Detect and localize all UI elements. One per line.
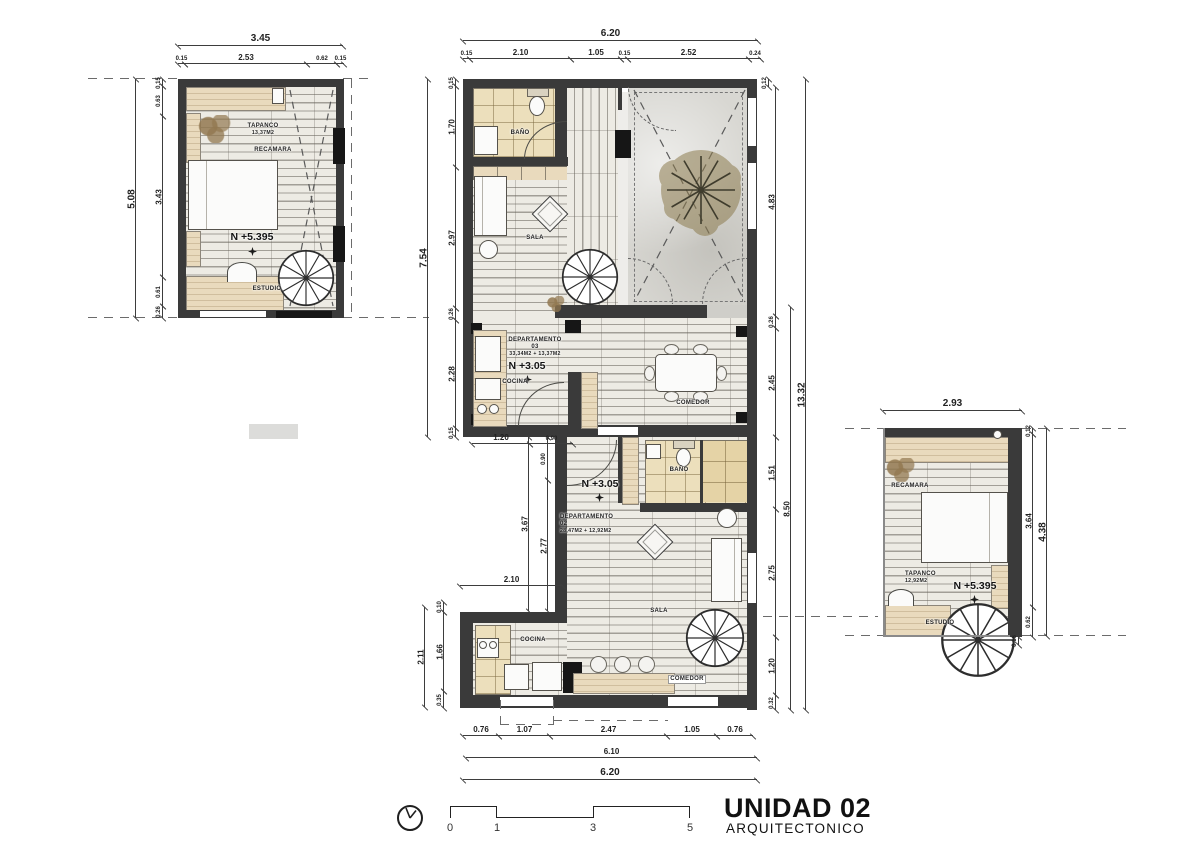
dim-v: 0.62 [1032, 607, 1033, 637]
dim-v: 5.08 [135, 79, 136, 318]
stove [475, 378, 501, 400]
reference-dash-line [845, 635, 883, 636]
scale-bar-segment [497, 806, 593, 818]
stool [638, 656, 655, 673]
side-table [717, 508, 737, 528]
level-label: N +3.05 [570, 478, 630, 490]
wall [460, 612, 473, 708]
stool [590, 656, 607, 673]
floor-plan-sheet: TAPANCO 13,37M2 RECAMARA N +5.395 ESTUDI… [0, 0, 1200, 855]
dim-text: 4.38 [1038, 522, 1049, 541]
projection-dash [553, 700, 554, 726]
scale-tick-label: 3 [588, 822, 598, 834]
dim-v: 4.83 [775, 87, 776, 316]
faded-note [249, 424, 298, 439]
window-opening [748, 98, 756, 146]
toilet [529, 96, 545, 116]
wall [336, 79, 344, 318]
dim-text: 2.47 [601, 725, 617, 734]
plant-decor [198, 115, 232, 143]
spiral-stair-icon [940, 602, 1016, 678]
dim-text: 6.20 [601, 28, 620, 39]
chair [644, 366, 655, 381]
dim-text: 13.32 [797, 382, 808, 407]
dim-v: 1.51 [775, 437, 776, 509]
dim-h: 6.10 [466, 757, 757, 758]
dim-v: 2.75 [775, 509, 776, 637]
arch-desk [227, 262, 257, 282]
scale-tick-label: 5 [685, 822, 695, 834]
window-opening [748, 553, 756, 603]
sill [707, 305, 747, 318]
dim-v: 0.32 [775, 695, 776, 710]
wall-dark [276, 311, 332, 318]
room-label-recamara2: RECAMARA [890, 483, 930, 490]
dim-h: 0.62 [307, 63, 337, 64]
dim-text: 6.20 [600, 767, 619, 778]
reference-dash-line [845, 428, 883, 429]
plant-decor [886, 458, 916, 482]
dim-text: 2.77 [540, 538, 549, 554]
dim-h: 2.10 [460, 585, 563, 586]
reference-dash-line [343, 78, 371, 79]
dim-h: 1.05 [571, 58, 621, 59]
dim-v: 1.70 [455, 86, 456, 167]
side-table [479, 240, 498, 259]
room-area: 12,92M2 [905, 578, 945, 585]
dim-text: 1.70 [448, 119, 457, 135]
dim-text: 0.24 [749, 51, 761, 57]
scale-tick-label: 1 [492, 822, 502, 834]
closet [622, 437, 639, 505]
dim-text: 2.28 [448, 366, 457, 382]
reference-dash-line [351, 79, 352, 318]
dim-v: 0.16 [1018, 637, 1019, 645]
dim-text: 0.62 [1026, 616, 1032, 628]
spiral-stair-icon [277, 249, 335, 307]
dim-text: 2.93 [943, 398, 962, 409]
spiral-stair-icon [685, 608, 745, 668]
reference-dash-line [1022, 635, 1126, 636]
level-label: N +5.395 [945, 580, 1005, 592]
dim-text: 5.08 [127, 189, 138, 208]
chair [664, 344, 679, 355]
dim-text: 0.15 [335, 56, 347, 62]
room-label-cocina: COCINA [500, 379, 530, 386]
dim-h: 2.47 [550, 735, 667, 736]
arch-desk [888, 589, 914, 606]
dim-v: 0.61 [162, 277, 163, 306]
bed-pillow-line [206, 161, 207, 229]
door-opening [500, 697, 553, 706]
dim-text: 2.52 [681, 48, 697, 57]
dim-text: 2.45 [768, 375, 777, 391]
dim-text: 0.76 [727, 725, 743, 734]
dim-h: 2.93 [883, 410, 1022, 411]
dim-v: 4.38 [1046, 428, 1047, 636]
level-marker-icon [595, 493, 604, 502]
dim-v: 0.15 [455, 428, 456, 437]
counter [504, 664, 529, 690]
dim-text: 1.20 [493, 433, 509, 442]
spiral-stair-icon [561, 248, 619, 306]
dim-v: 1.20 [775, 637, 776, 695]
dim-text: 0.15 [449, 427, 455, 439]
dim-text: 2.97 [448, 230, 457, 246]
door-opening [200, 311, 266, 317]
fixture [993, 430, 1002, 439]
dim-text: 1.05 [684, 725, 700, 734]
dim-text: 0.90 [541, 453, 547, 465]
burner [479, 641, 487, 649]
wall [618, 88, 622, 110]
wall [1008, 428, 1022, 637]
dim-h: 1.07 [499, 735, 550, 736]
wall-dark [565, 320, 581, 333]
dim-v: 2.97 [455, 167, 456, 308]
door-opening [598, 427, 638, 435]
level-label: N +5.395 [222, 231, 282, 243]
dim-text: 0.32 [769, 697, 775, 709]
dim-text: 8.50 [783, 501, 792, 517]
dim-text: 4.83 [768, 194, 777, 210]
stool [614, 656, 631, 673]
bed [921, 492, 1008, 563]
dim-v: 0.35 [443, 691, 444, 708]
room-label-sala2: SALA [644, 608, 674, 615]
wall [463, 88, 473, 437]
toilet [676, 448, 691, 467]
room-name: TAPANCO [905, 571, 936, 577]
chair [716, 366, 727, 381]
wall [463, 79, 757, 88]
closet [186, 231, 201, 267]
room-label-sala: SALA [520, 235, 550, 242]
dim-text: 1.05 [588, 48, 604, 57]
dim-h: 1.05 [667, 735, 717, 736]
dim-v: 2.77 [547, 480, 548, 611]
burner [489, 641, 497, 649]
dim-text: 1.66 [436, 644, 445, 660]
dim-v: 2.11 [424, 607, 425, 707]
dim-text: 0.62 [316, 56, 328, 62]
fixture [272, 88, 284, 104]
dim-h: 0.90 [530, 443, 573, 444]
corner-block [736, 326, 747, 337]
dim-text: 0.76 [473, 725, 489, 734]
projection-dash [553, 720, 668, 721]
dim-text: 3.64 [1025, 513, 1034, 529]
wall-dark [615, 130, 631, 158]
room-label-tapanco: TAPANCO 13,37M2 [240, 123, 286, 137]
sofa [474, 176, 507, 236]
projection-dash [500, 700, 501, 726]
dim-text: 0.26 [156, 306, 162, 318]
dim-text: 2.53 [238, 53, 254, 62]
sink-bowl [477, 404, 487, 414]
level-marker-icon [970, 595, 979, 604]
dining-table [655, 354, 717, 392]
room-label-estudio2: ESTUDIO [920, 620, 960, 627]
sheet-title: UNIDAD 02 [724, 793, 871, 824]
dim-text: 2.75 [768, 565, 777, 581]
reference-dash-line [343, 317, 429, 318]
shower [474, 126, 498, 155]
dim-h: 6.20 [463, 779, 757, 780]
dim-h: 1.20 [472, 443, 530, 444]
window-opening [748, 163, 756, 229]
room-label-dept03: DEPARTAMENTO 03 33,34M2 + 13,37M2 [505, 337, 565, 358]
room-name: TAPANCO [248, 123, 279, 129]
dim-text: 3.45 [251, 33, 270, 44]
wall [555, 305, 707, 318]
dim-v: 2.28 [455, 320, 456, 428]
room-label-comedor2: COMEDOR [668, 675, 706, 684]
dim-h: 0.76 [463, 735, 499, 736]
dim-v: 0.63 [162, 86, 163, 116]
dim-v: 0.26 [162, 306, 163, 318]
dept-name: DEPARTAMENTO 02 [560, 514, 613, 527]
wall [178, 79, 186, 318]
dim-v: 0.12 [768, 79, 769, 87]
scale-bar-segment [593, 806, 690, 818]
counter [532, 662, 562, 691]
tree-icon [645, 136, 757, 248]
wall [568, 372, 581, 427]
room-area: 13,37M2 [240, 130, 286, 137]
room-label-estudio: ESTUDIO [247, 286, 287, 293]
dim-v: 7.54 [427, 79, 428, 437]
dim-h: 3.45 [178, 45, 343, 46]
sink-bowl [489, 404, 499, 414]
dim-text: 0.61 [156, 286, 162, 298]
dim-text: 2.10 [513, 48, 529, 57]
room-label-comedor: COMEDOR [676, 400, 710, 407]
dim-v: 3.64 [1032, 434, 1033, 607]
dim-v: 2.45 [775, 328, 776, 437]
dim-text: 0.90 [546, 436, 558, 442]
dim-text: 1.07 [517, 725, 533, 734]
dim-h: 2.10 [470, 58, 571, 59]
sink [646, 444, 661, 459]
reference-dash-line [1022, 428, 1126, 429]
north-clock-icon [396, 804, 424, 832]
dept-area: 28,47M2 + 12,92M2 [560, 528, 620, 535]
room-label-bano2: BAÑO [664, 467, 694, 474]
bar-counter [573, 673, 675, 694]
dim-h: 6.20 [463, 40, 758, 41]
dim-text: 2.11 [417, 649, 426, 664]
dim-text: 1.20 [768, 658, 777, 674]
dim-text: 7.54 [419, 248, 430, 267]
closet [581, 372, 598, 429]
corner-block [736, 412, 747, 423]
room-label-cocina2: COCINA [518, 637, 548, 644]
room-label-tapanco2: TAPANCO 12,92M2 [905, 571, 945, 585]
sheet-subtitle: ARQUITECTONICO [726, 821, 865, 836]
room-label-bano: BAÑO [505, 130, 535, 137]
dim-text: 6.10 [604, 747, 620, 756]
dim-text: 0.35 [437, 694, 443, 706]
wall [178, 79, 343, 87]
window-block [333, 128, 345, 164]
wall [883, 428, 1010, 437]
shower-floor [703, 441, 747, 502]
dim-text: 2.10 [504, 575, 520, 584]
window-block [333, 226, 345, 262]
dim-text: 3.43 [155, 189, 164, 205]
door-opening [668, 697, 718, 706]
level-label: N +3.05 [497, 360, 557, 372]
room-label-recamara: RECAMARA [250, 147, 296, 154]
closet [186, 87, 286, 111]
chair [693, 344, 708, 355]
reference-dash-line [763, 616, 878, 617]
sofa-line [734, 539, 735, 601]
edge-line [883, 428, 885, 637]
wall [700, 440, 703, 503]
edge-line [883, 635, 1010, 637]
dim-text: 0.63 [156, 95, 162, 107]
dim-v: 3.43 [162, 116, 163, 277]
bed [188, 160, 278, 230]
dim-h: 0.76 [717, 735, 753, 736]
dim-h: 2.52 [628, 58, 749, 59]
dim-text: 3.67 [521, 516, 530, 532]
dim-h: 2.53 [185, 63, 307, 64]
dim-v: 1.66 [443, 612, 444, 691]
dim-h: 0.15 [337, 63, 344, 64]
room-label-dept02: DEPARTAMENTO 02 28,47M2 + 12,92M2 [560, 514, 620, 535]
dim-h: 0.24 [749, 58, 761, 59]
dim-text: 0.16 [1012, 635, 1018, 647]
scale-tick-label: 0 [445, 822, 455, 834]
sofa [711, 538, 742, 602]
sofa-line [482, 177, 483, 235]
dept-name: DEPARTAMENTO 03 [508, 337, 561, 350]
dim-text: 0.12 [762, 77, 768, 89]
scale-bar-segment [450, 806, 497, 818]
dim-v: 8.50 [790, 307, 791, 710]
level-marker-icon [248, 247, 257, 256]
bed-pillow-line [989, 493, 990, 562]
dept-area: 33,34M2 + 13,37M2 [505, 351, 565, 358]
dim-text: 1.51 [768, 465, 777, 481]
